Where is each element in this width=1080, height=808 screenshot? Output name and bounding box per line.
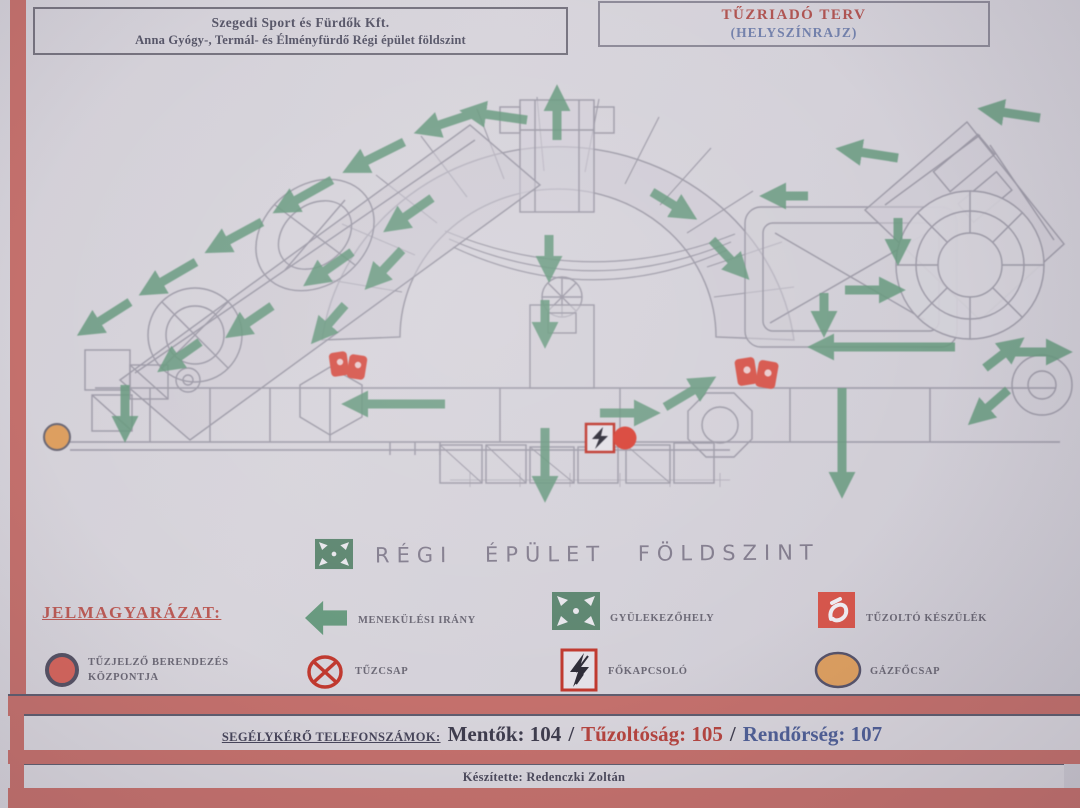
fire-evacuation-plan-photo: Szegedi Sport és Fürdők Kft. Anna Gyógy-… <box>0 0 1080 808</box>
company-name: Szegedi Sport és Fürdők Kft. <box>35 15 566 31</box>
plan-title-box: TŰZRIADÓ TERV (HELYSZÍNRAJZ) <box>598 1 990 47</box>
police-number: Rendőrség: 107 <box>743 722 882 747</box>
assembly-point-icon <box>552 592 600 630</box>
legend-label-hydrant: TŰZCSAP <box>355 664 408 679</box>
company-title-box: Szegedi Sport és Fürdők Kft. Anna Gyógy-… <box>33 7 568 55</box>
legend-label-main-switch: FŐKAPCSOLÓ <box>608 664 688 679</box>
emergency-numbers-bar: SEGÉLYKÉRŐ TELEFONSZÁMOK: Mentők: 104 / … <box>24 714 1080 754</box>
escape-direction-arrow-icon <box>305 598 347 638</box>
fire-alarm-center-marker <box>614 427 637 450</box>
separator: / <box>730 722 736 747</box>
page-border-band-left <box>10 0 26 808</box>
main-switch-marker <box>586 424 614 452</box>
page-border-band-2 <box>8 750 1080 764</box>
page-border-band-3 <box>8 788 1080 808</box>
fire-hydrant-icon <box>306 654 344 690</box>
legend-label-extinguisher: TŰZOLTÓ KÉSZÜLÉK <box>866 611 987 626</box>
gas-valve-marker <box>44 424 70 450</box>
page-border-band-1 <box>8 694 1080 716</box>
credit-text: Készítette: Redenczki Zoltán <box>463 770 626 785</box>
fire-extinguisher-marker-left <box>328 351 367 380</box>
legend-title: JELMAGYARÁZAT: <box>42 603 221 623</box>
legend-label-gas-valve: GÁZFŐCSAP <box>870 664 940 679</box>
floor-label: RÉGI ÉPÜLET FÖLDSZINT <box>375 540 820 567</box>
legend-label-escape: MENEKÜLÉSI IRÁNY <box>358 613 476 628</box>
emergency-numbers-label: SEGÉLYKÉRŐ TELEFONSZÁMOK: <box>222 730 441 745</box>
facility-name: Anna Gyógy-, Termál- és Élményfürdő Régi… <box>35 33 566 48</box>
separator: / <box>568 722 574 747</box>
plan-title: TŰZRIADÓ TERV <box>600 7 988 24</box>
legend-label-alarm-center: TŰZJELZŐ BERENDEZÉS KÖZPONTJA <box>88 655 258 685</box>
fire-alarm-center-icon <box>44 652 80 688</box>
floor-label-row: RÉGI ÉPÜLET FÖLDSZINT <box>315 533 820 575</box>
gas-main-valve-icon <box>814 651 862 689</box>
floor-plan-drawing <box>30 55 1080 520</box>
assembly-point-icon <box>315 538 353 570</box>
credit-bar: Készítette: Redenczki Zoltán <box>24 764 1064 790</box>
main-switch-icon <box>560 648 598 692</box>
plan-subtitle: (HELYSZÍNRAJZ) <box>600 25 988 41</box>
legend-label-assembly: GYÜLEKEZŐHELY <box>610 611 714 626</box>
fire-extinguisher-marker-right <box>734 357 779 390</box>
fire-department-number: Tűzoltóság: 105 <box>581 722 723 747</box>
ambulance-number: Mentők: 104 <box>448 722 562 747</box>
fire-extinguisher-icon <box>818 592 855 628</box>
